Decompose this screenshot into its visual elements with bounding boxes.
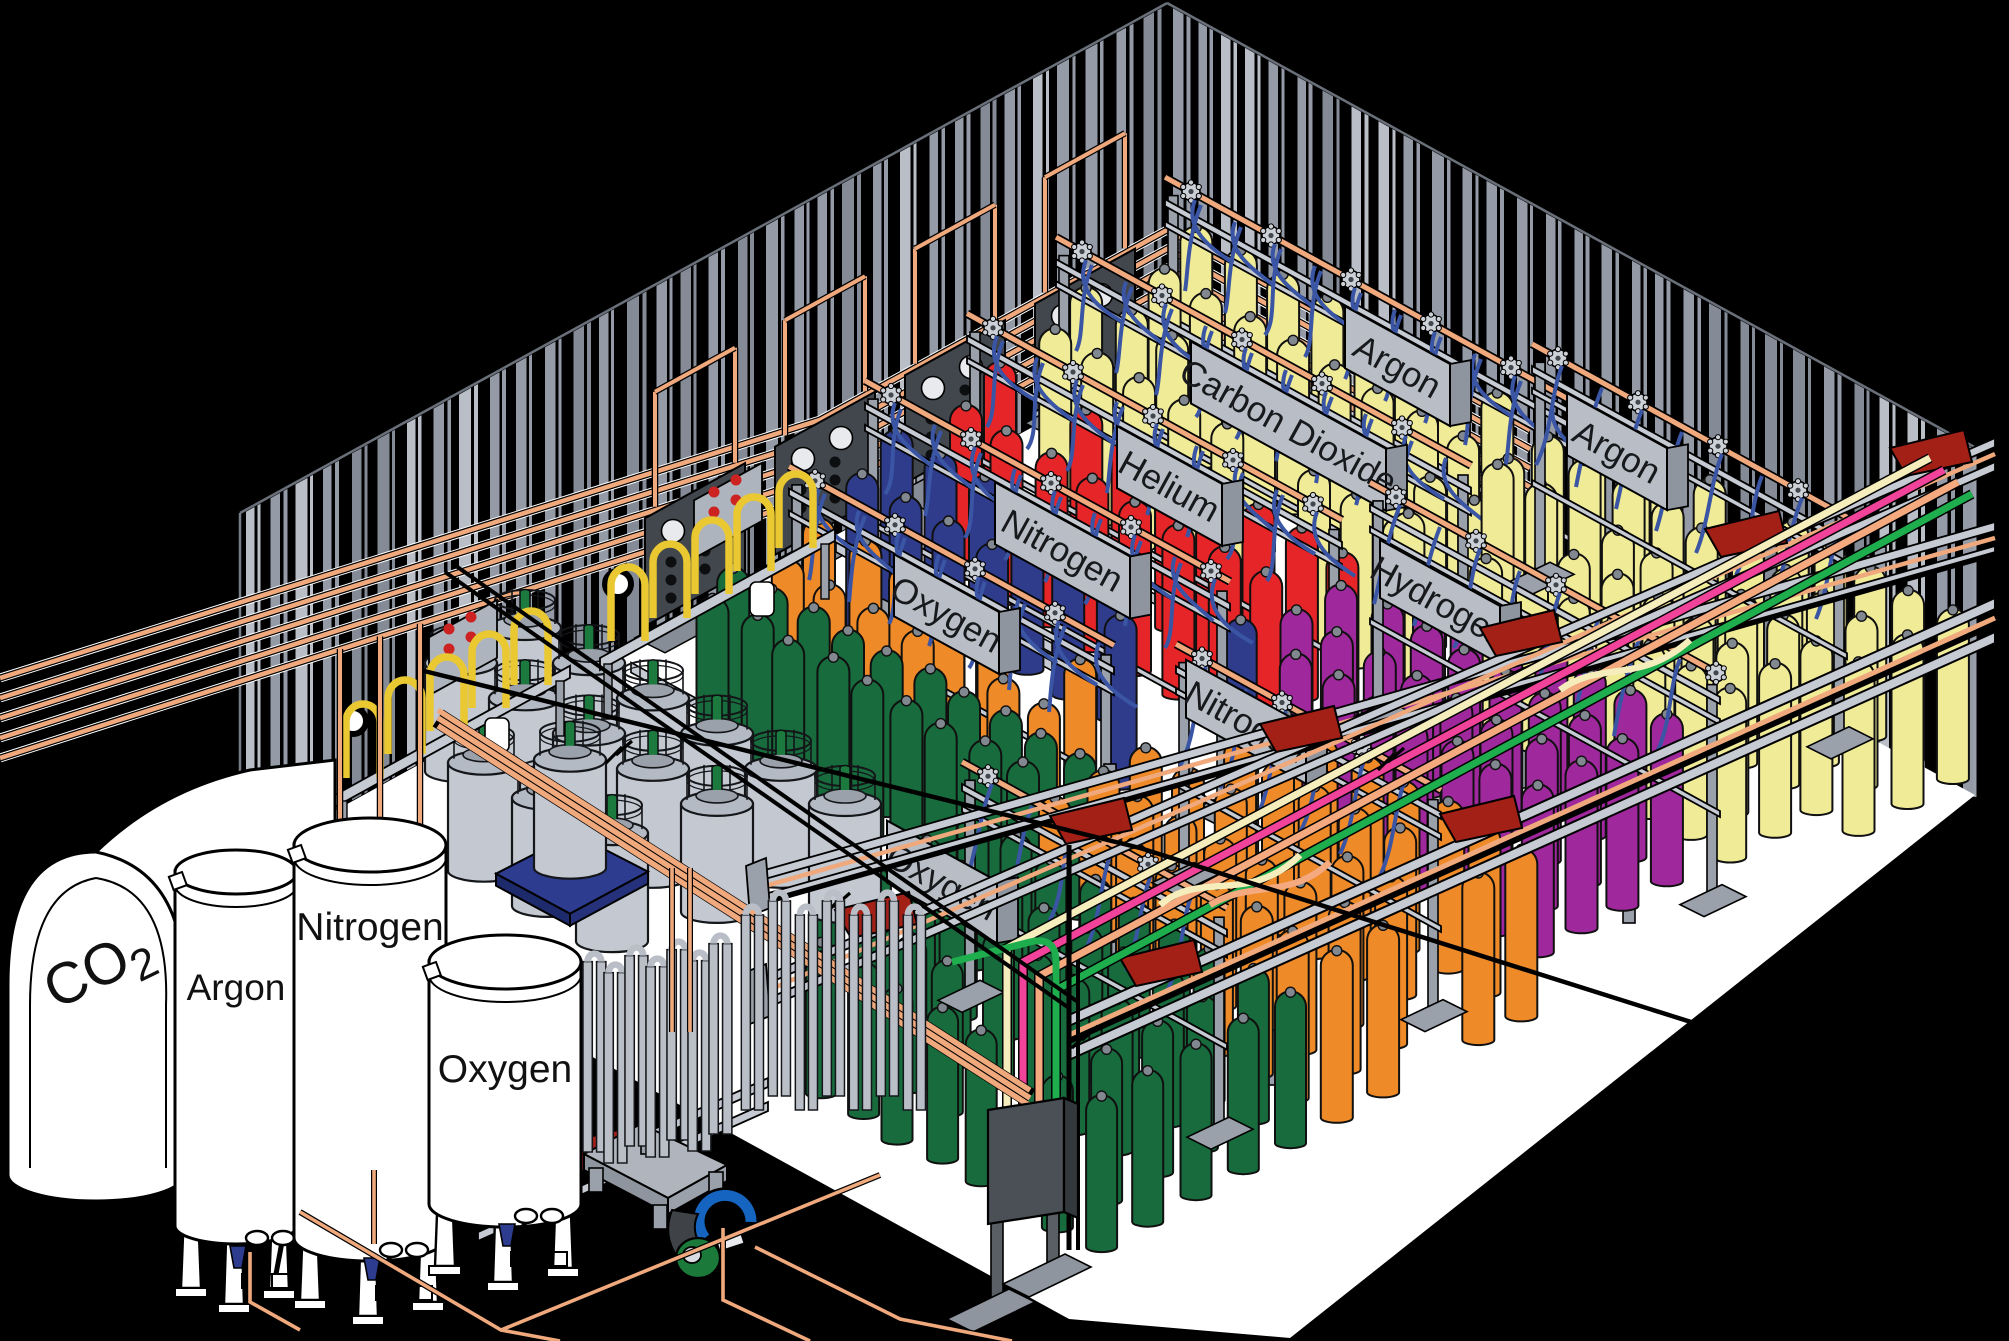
svg-text:Nitrogen: Nitrogen bbox=[296, 906, 443, 949]
svg-text:Argon: Argon bbox=[187, 967, 286, 1008]
svg-text:Oxygen: Oxygen bbox=[438, 1048, 572, 1091]
